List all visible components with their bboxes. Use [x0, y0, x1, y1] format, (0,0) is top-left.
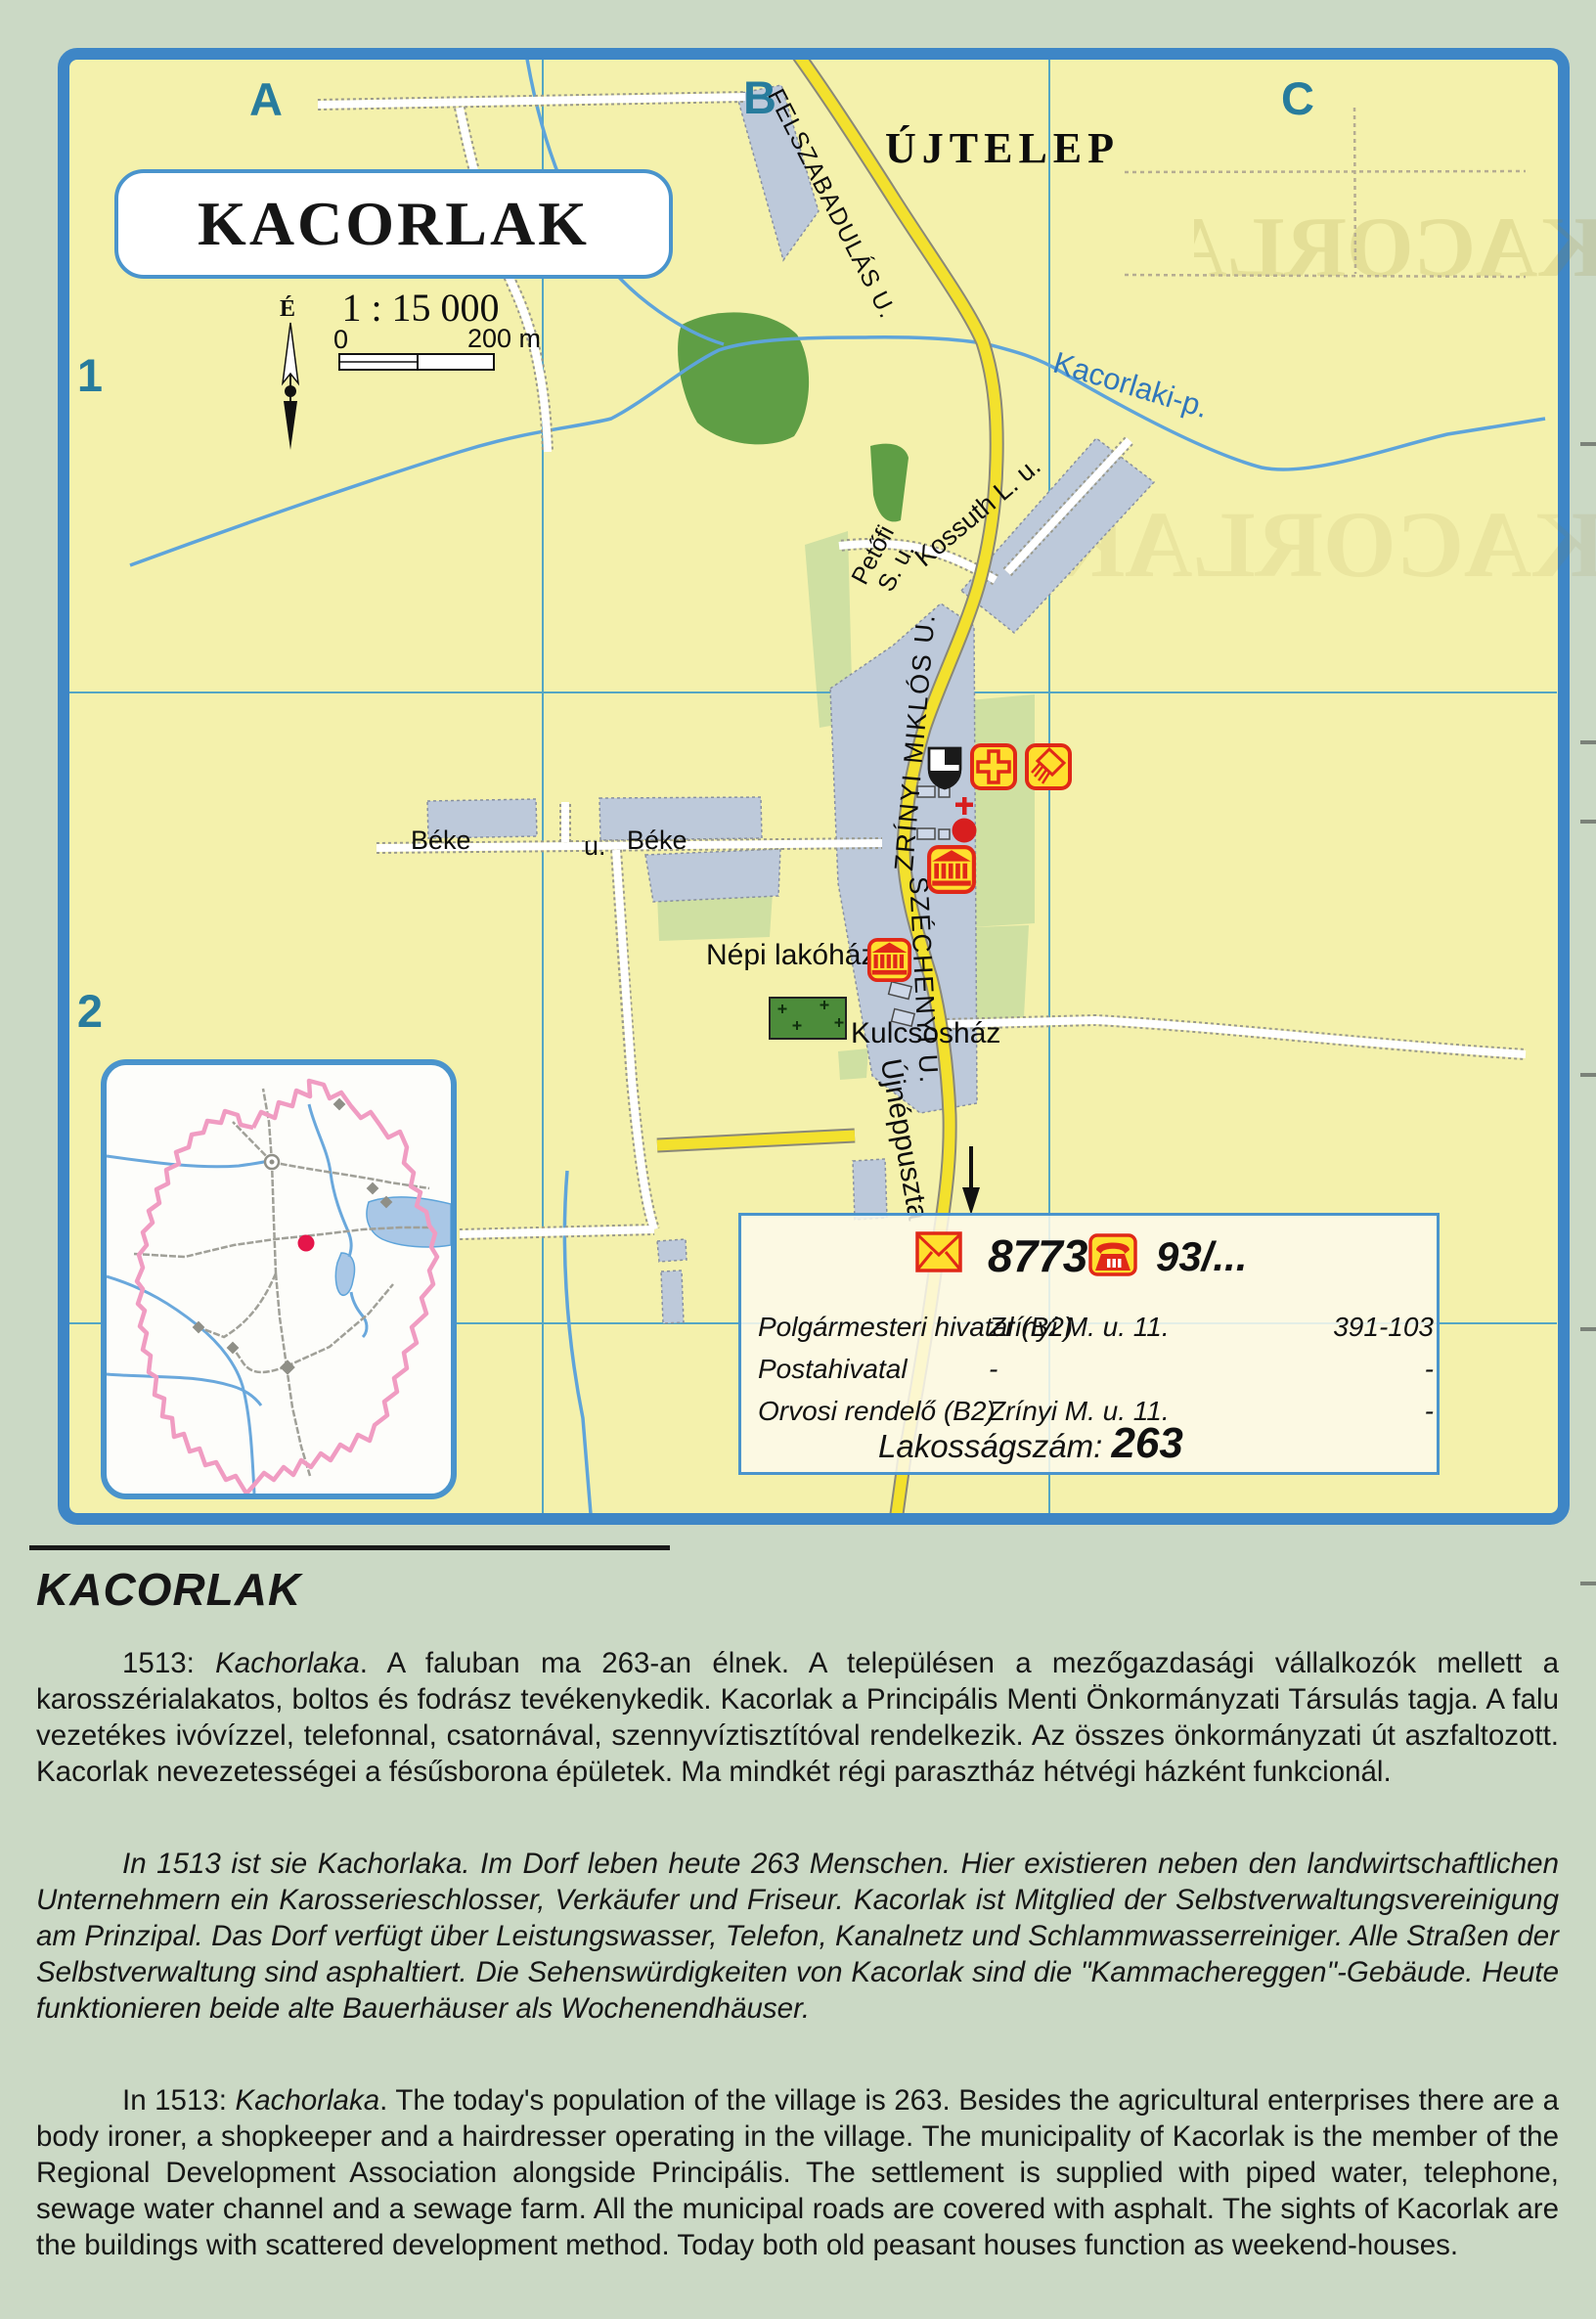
- page-edge-mark: [1580, 442, 1596, 446]
- grid-row-1: 1: [68, 348, 111, 402]
- grid-col-c: C: [1276, 71, 1319, 125]
- inset-canvas: [107, 1065, 451, 1494]
- map-title: KACORLAK: [198, 188, 590, 260]
- page-edge-mark: [1580, 820, 1596, 824]
- inset-rivers: [107, 1104, 367, 1494]
- historic-name: Kachorlaka: [215, 1647, 360, 1679]
- grid-row-2: 2: [68, 984, 111, 1038]
- scale-distance-label: 200 m: [467, 324, 541, 354]
- grid-col-a: A: [244, 72, 288, 126]
- street-label-beke-2: Béke: [627, 825, 687, 856]
- inset-locator-map: [101, 1059, 457, 1499]
- map-title-box: KACORLAK: [114, 169, 673, 279]
- paragraph-hungarian: 1513: Kachorlaka. A faluban ma 263-an él…: [36, 1645, 1559, 1790]
- page-edge-mark: [1580, 1327, 1596, 1331]
- population-value: 263: [1111, 1419, 1182, 1467]
- info-box: 8773 93/... Polgármesteri hivatal (B2) Z…: [738, 1213, 1440, 1475]
- monument-icon: [1024, 742, 1073, 791]
- article: KACORLAK 1513: Kachorlaka. A faluban ma …: [36, 1563, 1559, 2319]
- street-label-beke-u: u.: [584, 831, 606, 862]
- street-label-beke-1: Béke: [411, 825, 471, 856]
- inset-location-marker: [298, 1235, 315, 1252]
- page-edge-mark: [1580, 740, 1596, 744]
- envelope-icon: [915, 1231, 962, 1272]
- phone-prefix: 93/...: [1156, 1233, 1247, 1280]
- population-line: Lakosságszám: 263: [878, 1419, 1183, 1468]
- phone-icon: [1088, 1233, 1137, 1276]
- district-label-ujtelep: ÚJTELEP: [839, 123, 1166, 173]
- postal-code: 8773: [988, 1229, 1087, 1282]
- paragraph-english: In 1513: Kachorlaka. The today's populat…: [36, 2082, 1559, 2263]
- page-edge-mark: [1580, 1073, 1596, 1077]
- bleedthrough-text: KACORLAK: [1194, 199, 1596, 314]
- info-row: Postahivatal - -: [741, 1354, 1437, 1396]
- museum-icon: [866, 937, 912, 983]
- article-heading: KACORLAK: [36, 1563, 1559, 1616]
- poi-label-kulcsoshaz: Kulcsosház: [851, 1017, 1000, 1050]
- scale-zero-label: 0: [333, 325, 348, 355]
- doctor-icon: [969, 742, 1018, 791]
- bleedthrough-text: KACORLAK: [979, 490, 1596, 600]
- inset-county-border: [137, 1111, 253, 1494]
- historic-name: Kachorlaka: [236, 2084, 380, 2117]
- paragraph-german: In 1513 ist sie Kachorlaka. Im Dorf lebe…: [36, 1846, 1559, 2027]
- north-label: É: [280, 296, 295, 323]
- museum-icon: [926, 844, 977, 895]
- page-edge-mark: [1580, 1582, 1596, 1585]
- separator-rule: [29, 1545, 670, 1550]
- page: KACORLAK KACORLAK: [0, 0, 1596, 2240]
- poi-label-nepi-lakohaz: Népi lakóház: [706, 939, 875, 972]
- info-row: Polgármesteri hivatal (B2) Zrínyi M. u. …: [741, 1312, 1437, 1354]
